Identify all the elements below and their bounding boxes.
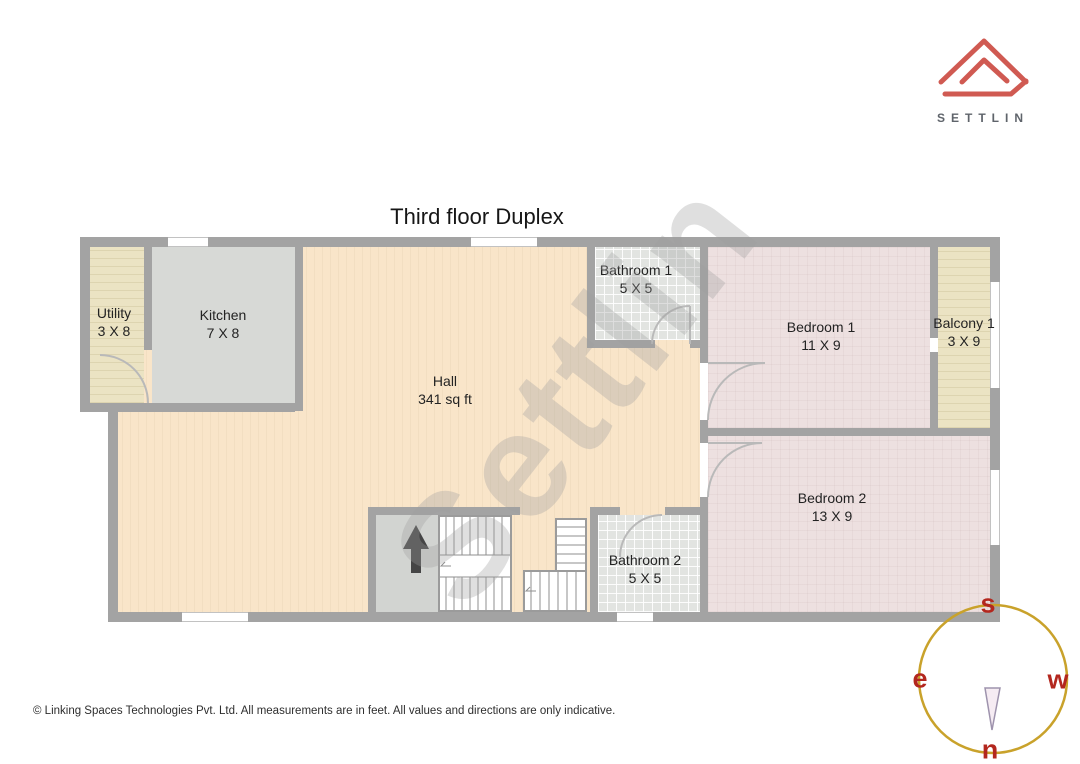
wall-segment xyxy=(590,515,598,612)
room-dims: 13 X 9 xyxy=(798,508,866,526)
plan-notch xyxy=(80,411,108,622)
room-name: Kitchen xyxy=(200,307,247,325)
window xyxy=(182,612,248,622)
room-label-bedroom1: Bedroom 1 11 X 9 xyxy=(787,319,855,354)
room-dims: 5 X 5 xyxy=(609,570,681,588)
wall-segment xyxy=(587,340,655,348)
compass: s e w n xyxy=(908,593,1078,764)
wall-segment xyxy=(80,237,1000,247)
room-dims: 5 X 5 xyxy=(600,280,672,298)
wall-segment xyxy=(700,247,708,363)
wall-segment xyxy=(587,245,595,340)
wall-segment xyxy=(295,245,303,411)
stair-landing xyxy=(376,515,438,612)
compass-west: w xyxy=(1047,665,1068,696)
room-name: Bedroom 1 xyxy=(787,319,855,337)
wall-segment xyxy=(144,245,152,350)
wall-segment xyxy=(665,507,700,515)
compass-east: e xyxy=(912,664,927,695)
room-label-bathroom1: Bathroom 1 5 X 5 xyxy=(600,262,672,297)
compass-south: s xyxy=(980,589,995,620)
wall-segment xyxy=(108,411,118,622)
settlin-logo: SETTLIN xyxy=(928,26,1038,125)
window xyxy=(990,470,1000,545)
disclaimer-text: © Linking Spaces Technologies Pvt. Ltd. … xyxy=(33,705,615,717)
room-label-kitchen: Kitchen 7 X 8 xyxy=(200,307,247,342)
wall-segment xyxy=(690,340,700,348)
staircase-1 xyxy=(438,515,512,612)
wall-segment xyxy=(80,237,90,411)
logo-wordmark: SETTLIN xyxy=(928,111,1038,125)
room-dims: 7 X 8 xyxy=(200,325,247,343)
wall-segment xyxy=(368,507,520,515)
room-name: Bathroom 1 xyxy=(600,262,672,280)
wall-segment xyxy=(700,420,708,443)
floor-plan-page: SETTLIN Third floor Duplex xyxy=(0,0,1080,764)
room-name: Utility xyxy=(97,305,131,323)
room-label-bedroom2: Bedroom 2 13 X 9 xyxy=(798,490,866,525)
room-dims: 11 X 9 xyxy=(787,337,855,355)
wall-segment xyxy=(708,428,992,436)
room-name: Balcony 1 xyxy=(933,315,994,333)
plan-title: Third floor Duplex xyxy=(390,204,564,230)
wall-segment xyxy=(590,507,620,515)
wall-segment xyxy=(368,515,376,612)
room-label-utility: Utility 3 X 8 xyxy=(97,305,131,340)
settlin-house-icon xyxy=(931,26,1035,104)
wall-segment xyxy=(930,352,938,428)
room-dims: 3 X 8 xyxy=(97,323,131,341)
room-name: Bedroom 2 xyxy=(798,490,866,508)
room-dims: 3 X 9 xyxy=(933,333,994,351)
window xyxy=(471,237,537,247)
room-dims: 341 sq ft xyxy=(418,391,472,409)
room-name: Bathroom 2 xyxy=(609,552,681,570)
window xyxy=(617,612,653,622)
room-label-bathroom2: Bathroom 2 5 X 5 xyxy=(609,552,681,587)
floor-plan: Utility 3 X 8 Kitchen 7 X 8 Hall 341 sq … xyxy=(80,237,1000,622)
compass-north: n xyxy=(982,735,999,764)
wall-segment xyxy=(80,403,295,412)
staircase-2-lower xyxy=(523,570,587,612)
staircase-2-upper xyxy=(555,518,587,573)
window xyxy=(168,237,208,247)
room-name: Hall xyxy=(418,373,472,391)
wall-segment xyxy=(700,497,708,612)
compass-needle xyxy=(985,688,1000,730)
room-label-hall: Hall 341 sq ft xyxy=(418,373,472,408)
room-label-balcony1: Balcony 1 3 X 9 xyxy=(933,315,994,350)
